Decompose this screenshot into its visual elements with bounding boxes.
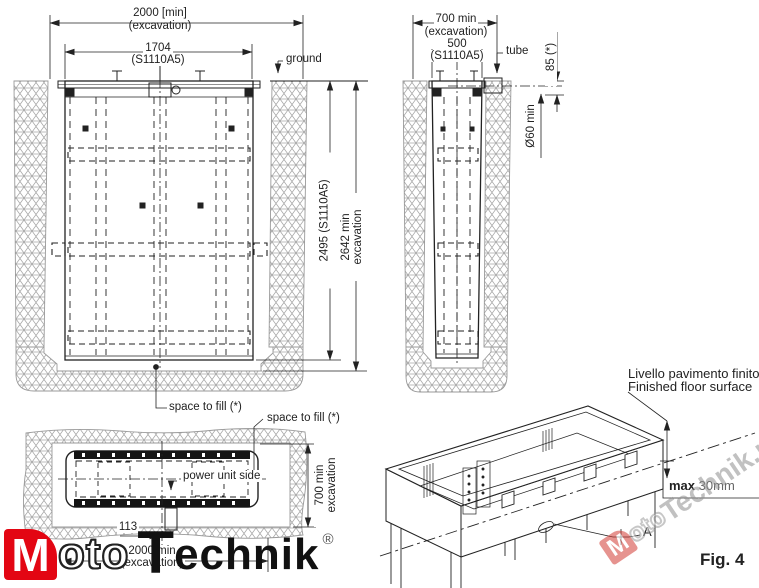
- fv-dim-excavation-width-sub: (excavation): [95, 20, 225, 32]
- technical-drawing-page: 2000 [min] (excavation) 1704 (S1110A5) g…: [0, 0, 759, 588]
- logo-echnik-text: echnik: [174, 529, 319, 581]
- sv-dim-excavation-width-sub: (excavation): [400, 26, 512, 38]
- drawing-linework: [0, 0, 759, 588]
- sv-tube-label: tube: [506, 45, 528, 57]
- sv-dim-frame-width-sub: (S1110A5): [412, 50, 502, 62]
- fv-dim-excavation-width: 2000 [min]: [95, 7, 225, 19]
- sv-dim-tube-depth: 85 (*): [545, 28, 557, 86]
- front-view: [14, 15, 368, 408]
- side-view: [403, 15, 564, 392]
- fv-dim-excavation-depth: 2642 min excavation: [340, 193, 364, 281]
- iso-floor-label-en: Finished floor surface: [628, 381, 752, 393]
- logo-m-mark: M: [4, 529, 57, 580]
- fv-dim-frame-width: 1704: [98, 42, 218, 54]
- sv-dim-frame-width: 500: [412, 38, 502, 50]
- tv-space-to-fill-label: space to fill (*): [267, 412, 340, 424]
- mototechnik-logo: M oto T echnik ®: [4, 529, 334, 581]
- sv-dim-excavation-width: 700 min: [400, 13, 512, 25]
- fv-space-to-fill-label: space to fill (*): [169, 401, 242, 413]
- fv-ground-label: ground: [286, 53, 322, 65]
- tv-dim-excavation-height: 700 min excavation: [314, 443, 338, 527]
- tv-power-unit-label: power unit side: [181, 470, 262, 482]
- sv-dim-tube-diameter: Ø60 min: [525, 93, 537, 159]
- fv-dim-frame-width-sub: (S1110A5): [98, 54, 218, 66]
- logo-t-text: T: [137, 529, 174, 577]
- figure-label: Fig. 4: [700, 554, 744, 566]
- logo-oto-text: oto: [58, 529, 129, 579]
- registered-trademark-icon: ®: [322, 531, 333, 548]
- fv-dim-frame-depth: 2495 (S1110A5): [318, 153, 331, 289]
